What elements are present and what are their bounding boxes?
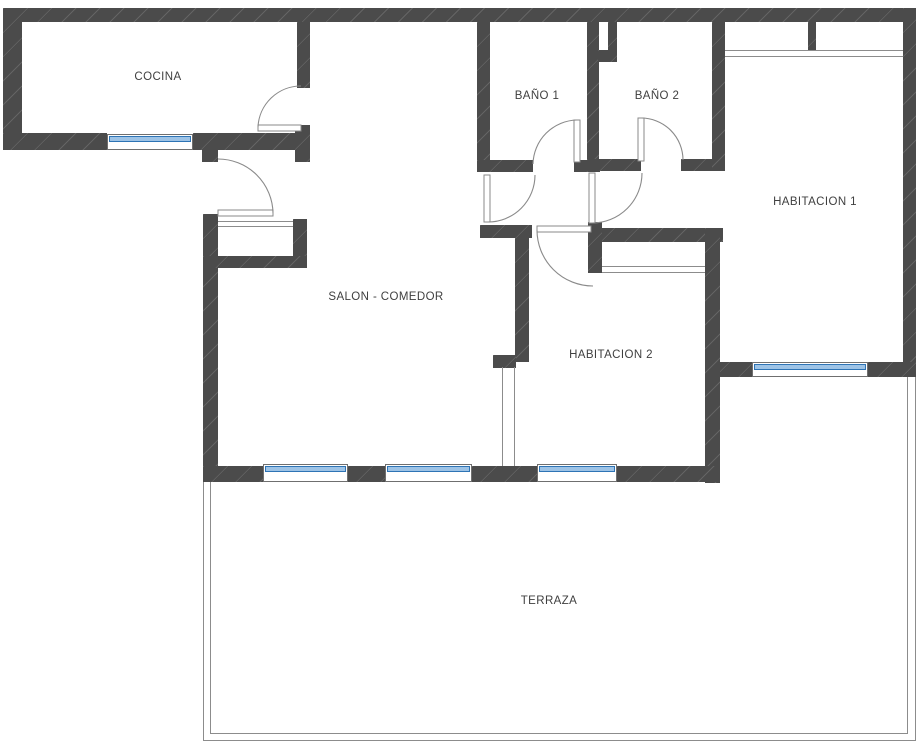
window bbox=[537, 464, 617, 482]
wall-segment bbox=[348, 466, 385, 482]
wall-segment bbox=[477, 22, 490, 172]
door-leaf bbox=[218, 210, 273, 216]
window-glazing bbox=[109, 136, 191, 142]
door-leaf bbox=[589, 173, 595, 223]
window bbox=[263, 464, 348, 482]
terrace-boundary bbox=[203, 740, 916, 741]
closet-front-line bbox=[725, 56, 903, 57]
wall-segment bbox=[617, 466, 720, 482]
window bbox=[107, 134, 193, 150]
closet-front-line bbox=[218, 226, 293, 227]
closet-front-line bbox=[602, 272, 705, 273]
room-label-bano2: BAÑO 2 bbox=[635, 90, 680, 102]
wall-segment bbox=[868, 362, 916, 377]
wall-segment bbox=[515, 238, 529, 362]
door-leaf bbox=[638, 118, 644, 161]
door-arc bbox=[258, 86, 301, 127]
closet-front-line bbox=[725, 50, 903, 51]
wall-segment bbox=[203, 256, 307, 268]
floor-plan: COCINA BAÑO 1 BAÑO 2 HABITACION 1 SALON … bbox=[0, 0, 920, 744]
partition-line bbox=[502, 367, 503, 466]
room-label-cocina: COCINA bbox=[134, 71, 181, 83]
door-arc bbox=[488, 175, 535, 222]
window-glazing bbox=[754, 364, 866, 370]
window bbox=[385, 464, 472, 482]
terrace-boundary bbox=[203, 482, 204, 741]
wall-segment bbox=[472, 466, 537, 482]
wall-segment bbox=[480, 225, 532, 238]
closet-front-line bbox=[218, 221, 293, 222]
wall-segment bbox=[588, 222, 602, 273]
window-glazing bbox=[539, 466, 615, 472]
door-leaf bbox=[537, 226, 591, 232]
wall-segment bbox=[3, 8, 22, 150]
wall-segment bbox=[590, 228, 723, 242]
wall-segment bbox=[477, 160, 533, 172]
room-label-salon: SALON - COMEDOR bbox=[328, 291, 443, 303]
room-label-bano1: BAÑO 1 bbox=[515, 90, 560, 102]
window bbox=[752, 362, 868, 377]
wall-segment bbox=[587, 22, 599, 171]
room-label-terraza: TERRAZA bbox=[521, 595, 577, 607]
closet-front-line bbox=[602, 266, 705, 267]
wall-segment bbox=[705, 228, 720, 483]
partition-line bbox=[514, 367, 515, 466]
door-arc bbox=[592, 173, 642, 223]
door-arc bbox=[533, 120, 577, 164]
door-arc bbox=[641, 118, 683, 160]
wall-segment bbox=[587, 159, 641, 171]
window-glazing bbox=[265, 466, 346, 472]
terrace-boundary bbox=[210, 733, 908, 734]
wall-segment bbox=[903, 8, 916, 377]
wall-segment bbox=[3, 8, 916, 22]
wall-segment bbox=[3, 133, 107, 150]
wall-segment bbox=[712, 22, 725, 171]
wall-segment bbox=[493, 355, 516, 368]
door-arc bbox=[218, 159, 273, 213]
window-glazing bbox=[387, 466, 470, 472]
terrace-boundary bbox=[915, 377, 916, 741]
wall-segment bbox=[203, 466, 263, 482]
room-label-habitacion1: HABITACION 1 bbox=[773, 196, 857, 208]
door-leaf bbox=[484, 175, 490, 222]
room-label-habitacion2: HABITACION 2 bbox=[569, 349, 653, 361]
wall-segment bbox=[598, 50, 617, 62]
wall-segment bbox=[297, 22, 310, 88]
door-arc bbox=[537, 230, 593, 286]
wall-segment bbox=[203, 214, 218, 482]
terrace-boundary bbox=[907, 377, 908, 734]
wall-segment bbox=[808, 22, 816, 50]
door-leaf bbox=[574, 120, 580, 162]
terrace-boundary bbox=[210, 482, 211, 734]
wall-segment bbox=[202, 148, 218, 162]
wall-segment bbox=[295, 125, 310, 162]
